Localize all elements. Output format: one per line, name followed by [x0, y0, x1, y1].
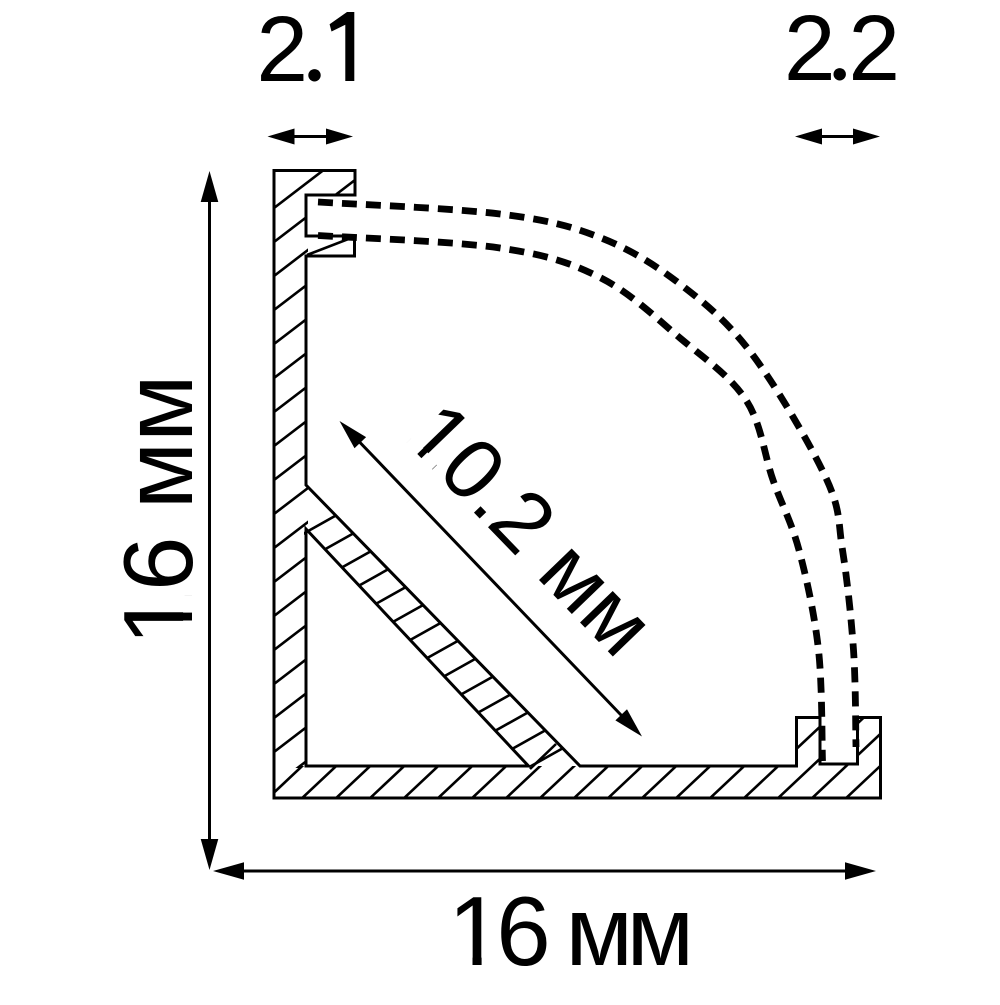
svg-text:2: 2: [848, 0, 900, 100]
svg-text:2: 2: [256, 0, 308, 101]
svg-text:2: 2: [784, 0, 836, 100]
svg-text:16 мм: 16 мм: [448, 876, 694, 986]
svg-text:16 мм: 16 мм: [103, 375, 213, 646]
